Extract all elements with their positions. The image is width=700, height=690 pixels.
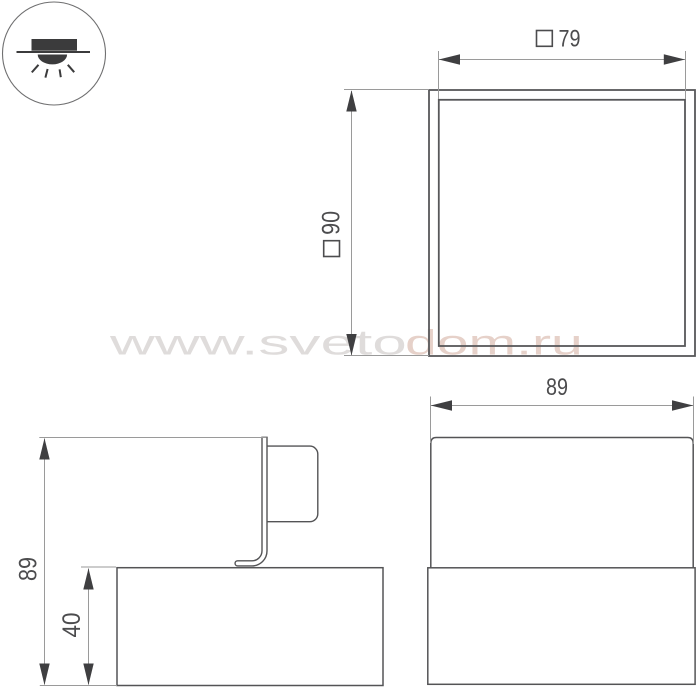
- svg-text:89: 89: [15, 557, 43, 581]
- svg-text:40: 40: [58, 613, 86, 638]
- svg-text:www.sveto: www.sveto: [109, 322, 407, 362]
- svg-text:89: 89: [546, 374, 568, 401]
- svg-text:90: 90: [318, 211, 346, 235]
- svg-text:79: 79: [559, 26, 581, 53]
